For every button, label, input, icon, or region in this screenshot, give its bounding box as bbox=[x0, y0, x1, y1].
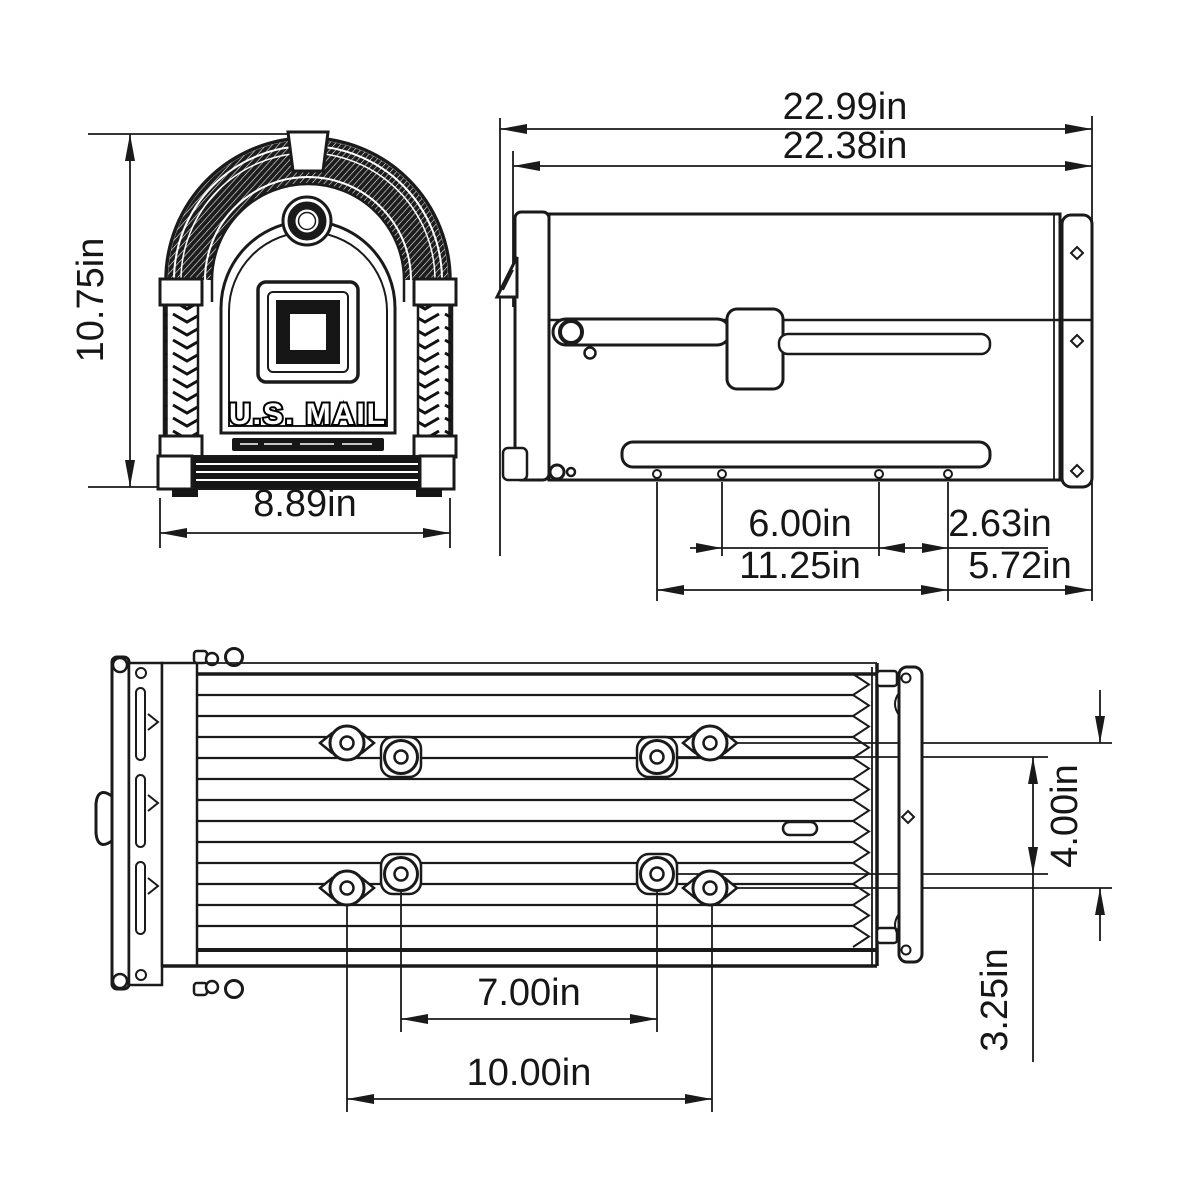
hinge-rivet bbox=[136, 668, 146, 678]
base-right-block bbox=[420, 456, 454, 489]
door-knob bbox=[283, 197, 331, 245]
body-length-label: 22.38in bbox=[783, 125, 908, 167]
flag-clip-tab bbox=[727, 309, 783, 389]
outer-row-spacing-label: 4.00in bbox=[1044, 764, 1086, 868]
bolt-hole bbox=[341, 737, 354, 750]
flag-pivot bbox=[560, 321, 582, 343]
washer-bolt bbox=[381, 854, 421, 894]
front-height-label: 10.75in bbox=[70, 238, 112, 363]
drain-slot bbox=[783, 822, 817, 835]
rear-hole-offset-label: 2.63in bbox=[948, 503, 1052, 545]
bolt-hole bbox=[651, 868, 664, 881]
inner-row-spacing-label: 3.25in bbox=[974, 948, 1016, 1052]
front-door-edge bbox=[515, 212, 549, 480]
hinge-rivet bbox=[136, 970, 146, 980]
left-rope-column bbox=[164, 303, 198, 438]
hinge-slot bbox=[136, 688, 145, 760]
hinge-end-bump bbox=[113, 974, 127, 988]
washer-bolt bbox=[637, 854, 677, 894]
hinge-slot bbox=[136, 862, 145, 934]
lower-slot bbox=[622, 442, 990, 467]
floor-hole bbox=[875, 470, 883, 478]
base-left-foot bbox=[172, 489, 198, 497]
bolt-hole bbox=[704, 737, 717, 750]
right-column-capital bbox=[414, 279, 456, 305]
canvas-background bbox=[0, 0, 1200, 1200]
upper-slot bbox=[779, 334, 990, 354]
bolt-hole bbox=[651, 751, 664, 764]
outer-hole-spacing-label: 10.00in bbox=[467, 1052, 592, 1094]
left-column-capital bbox=[160, 279, 202, 305]
mailbox-dimension-drawing-page: 10.75in 8.89in bbox=[0, 0, 1200, 1200]
mailbox-dimension-drawing: 10.75in 8.89in bbox=[0, 0, 1200, 1200]
center-hole-spacing-label: 6.00in bbox=[748, 503, 852, 545]
door-edge-band bbox=[162, 663, 197, 966]
floor-hole bbox=[653, 470, 661, 478]
bolt-hole bbox=[341, 882, 354, 895]
mounting-hole-span-label: 11.25in bbox=[739, 545, 861, 587]
window-opening bbox=[290, 314, 326, 350]
hinge-outer-bar bbox=[112, 657, 129, 989]
bracket-tab bbox=[877, 928, 897, 943]
left-column-base bbox=[160, 436, 202, 457]
floor-hole bbox=[718, 470, 726, 478]
latch-pin bbox=[567, 468, 575, 476]
hinge-knuckle bbox=[226, 981, 243, 998]
right-rope-column bbox=[418, 303, 452, 438]
flag-bracket bbox=[96, 793, 113, 845]
base-right-foot bbox=[416, 489, 442, 497]
washer-bolt bbox=[381, 737, 421, 777]
inner-hole-spacing-label: 7.00in bbox=[477, 972, 581, 1014]
base-left-block bbox=[158, 456, 192, 489]
fine-print-bar bbox=[232, 438, 384, 451]
bolt-hole bbox=[395, 868, 408, 881]
hinge-slot bbox=[136, 775, 145, 847]
door-window bbox=[258, 282, 358, 382]
pivot-rivet bbox=[585, 348, 596, 359]
bolt-hole bbox=[704, 882, 717, 895]
us-mail-text: U.S. MAIL bbox=[229, 398, 387, 431]
door-foot bbox=[503, 448, 527, 480]
bolt-hole bbox=[395, 751, 408, 764]
washer-bolt bbox=[637, 737, 677, 777]
overall-length-label: 22.99in bbox=[783, 86, 908, 128]
hinge-end-bump bbox=[113, 658, 127, 672]
rear-overhang-label: 5.72in bbox=[968, 545, 1072, 587]
bracket-tab bbox=[877, 671, 897, 686]
latch-knob bbox=[550, 465, 564, 479]
hinge-knuckle bbox=[206, 981, 218, 993]
bracket-rivet bbox=[902, 674, 911, 683]
bracket-rivet bbox=[902, 946, 911, 955]
right-column-base bbox=[414, 436, 456, 457]
side-mailbox-drawing bbox=[497, 212, 1092, 487]
top-cap bbox=[288, 132, 328, 171]
floor-hole bbox=[944, 470, 952, 478]
